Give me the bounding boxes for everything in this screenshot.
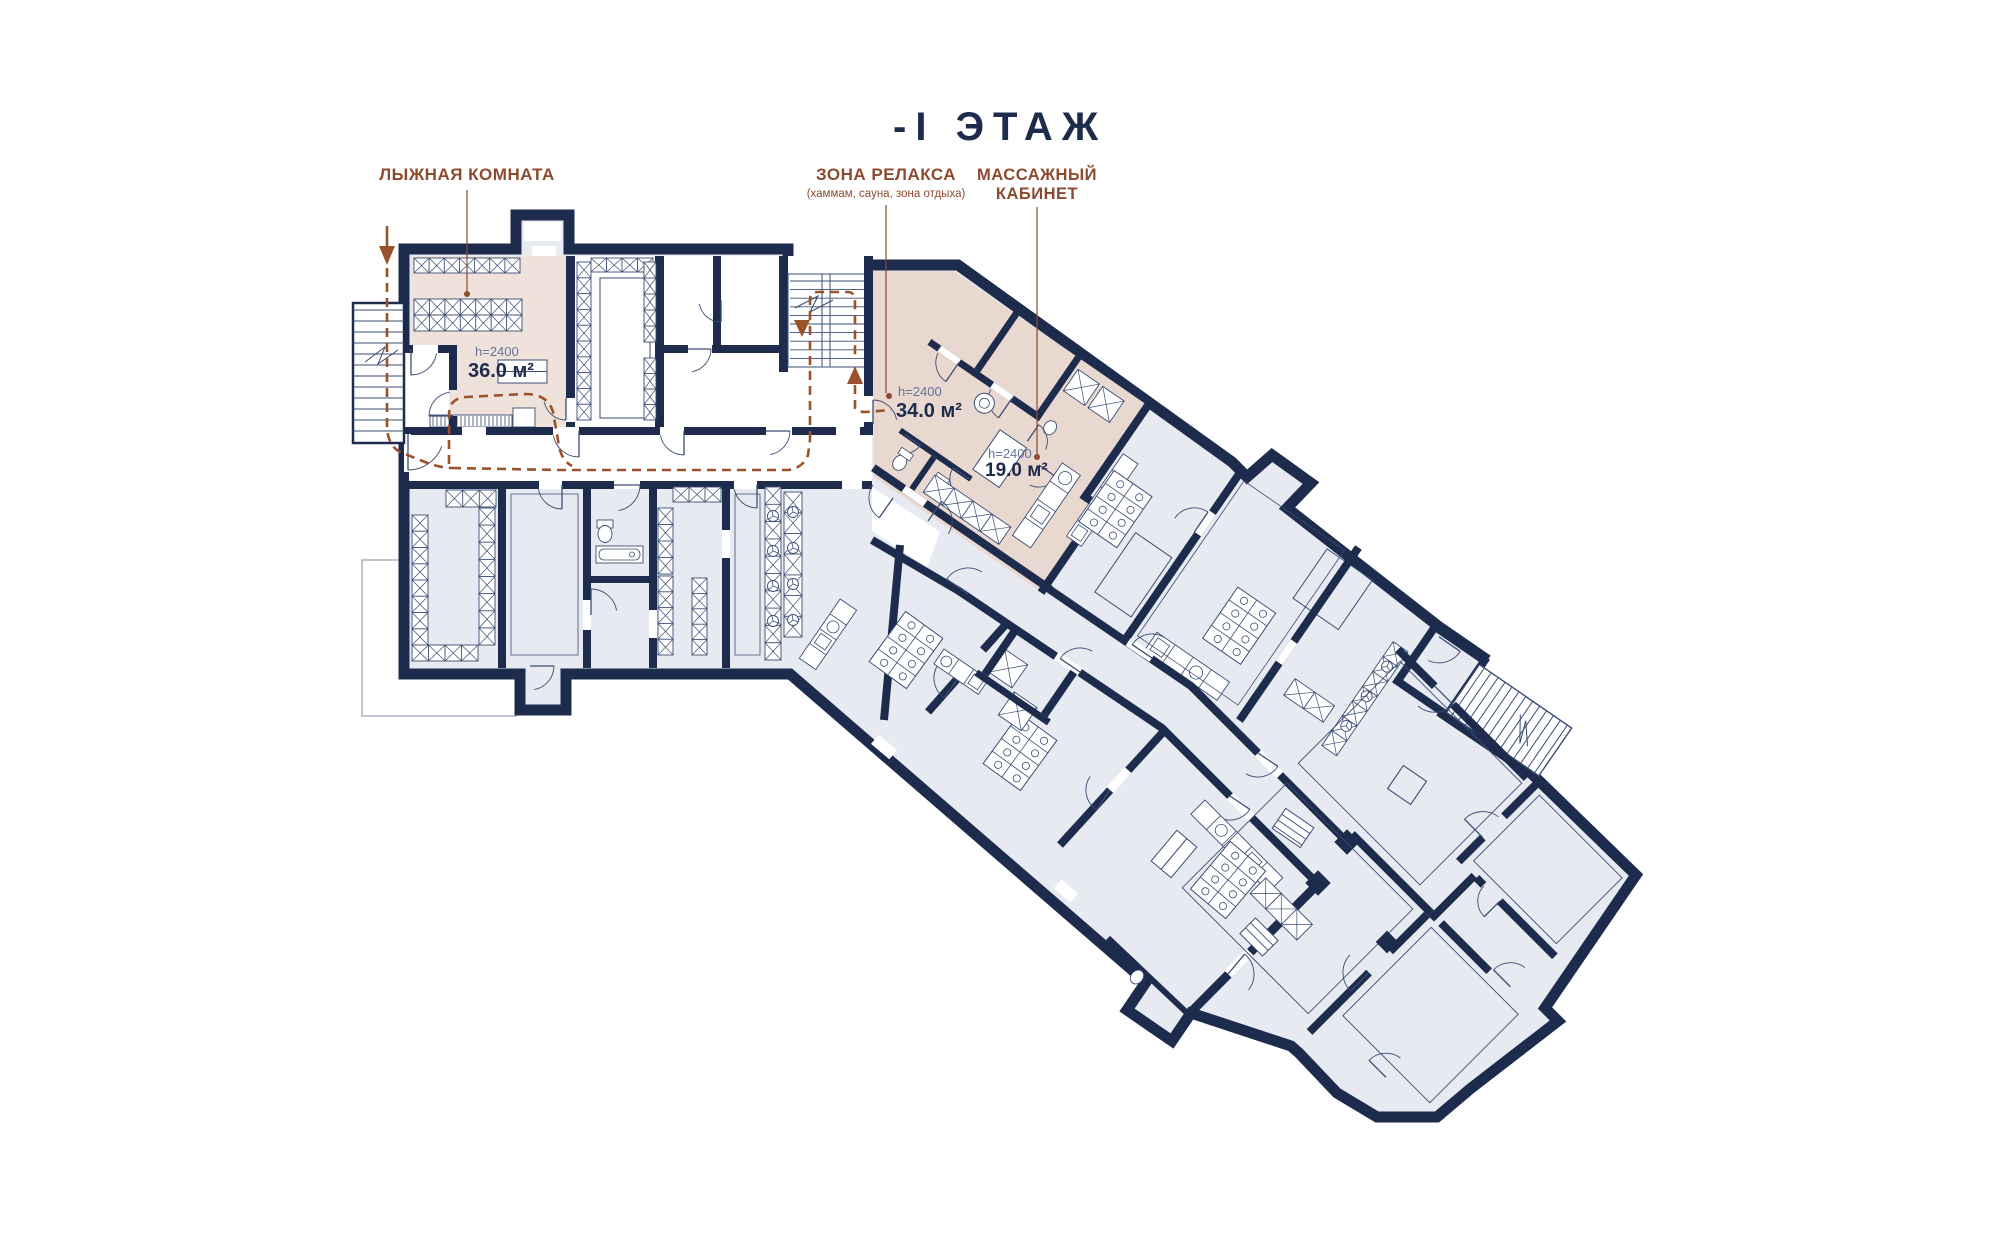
svg-text:h=2400: h=2400	[988, 446, 1032, 461]
svg-text:-I ЭТАЖ: -I ЭТАЖ	[893, 105, 1107, 149]
svg-text:h=2400: h=2400	[475, 344, 519, 359]
svg-text:36.0 м²: 36.0 м²	[468, 360, 534, 382]
svg-text:ЛЫЖНАЯ КОМНАТА: ЛЫЖНАЯ КОМНАТА	[379, 165, 555, 184]
svg-text:МАССАЖНЫЙ: МАССАЖНЫЙ	[977, 165, 1097, 184]
svg-text:КАБИНЕТ: КАБИНЕТ	[996, 185, 1078, 203]
svg-text:34.0 м²: 34.0 м²	[896, 400, 962, 422]
svg-text:(хаммам, сауна, зона отдыха): (хаммам, сауна, зона отдыха)	[807, 188, 966, 200]
svg-text:19.0 м²: 19.0 м²	[985, 460, 1048, 481]
svg-text:ЗОНА РЕЛАКСА: ЗОНА РЕЛАКСА	[816, 165, 956, 184]
svg-text:h=2400: h=2400	[898, 384, 942, 399]
